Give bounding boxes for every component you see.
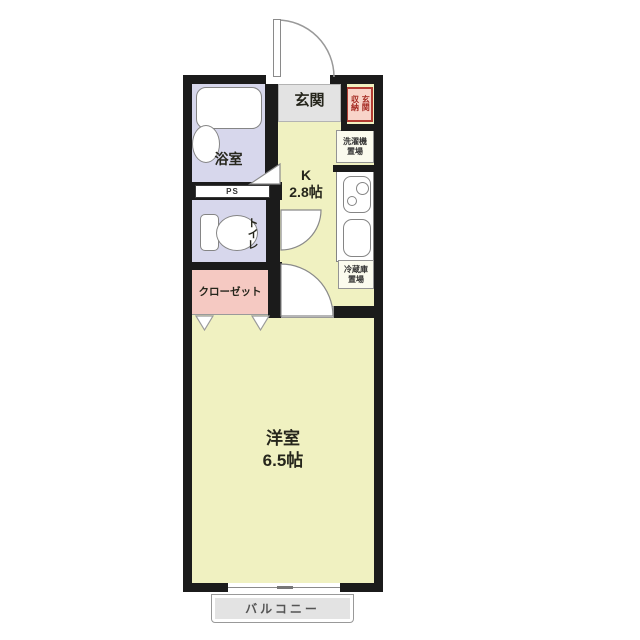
entrance-door-arc (277, 20, 334, 77)
toilet-door-arc (281, 210, 321, 250)
closet-fold-door-triangle (196, 316, 213, 330)
closet-label: クローゼット (192, 284, 268, 299)
balcony-window (228, 583, 340, 592)
toilet-label: トイレ (243, 205, 261, 261)
window-center-tick (277, 586, 293, 589)
floor-plan: 玄関収納 洗濯機 置場 冷蔵庫 置場 PS (0, 0, 640, 640)
kitchen-label: K 2.8帖 (268, 167, 344, 201)
entrance-label: 玄関 (278, 93, 341, 108)
closet-fold-door-triangle (252, 316, 269, 330)
bathroom-label: 浴室 (192, 149, 265, 169)
main-room-label: 洋室 6.5帖 (192, 428, 374, 472)
entrance-door-leaf (273, 19, 281, 77)
room-door-arc (281, 264, 333, 316)
